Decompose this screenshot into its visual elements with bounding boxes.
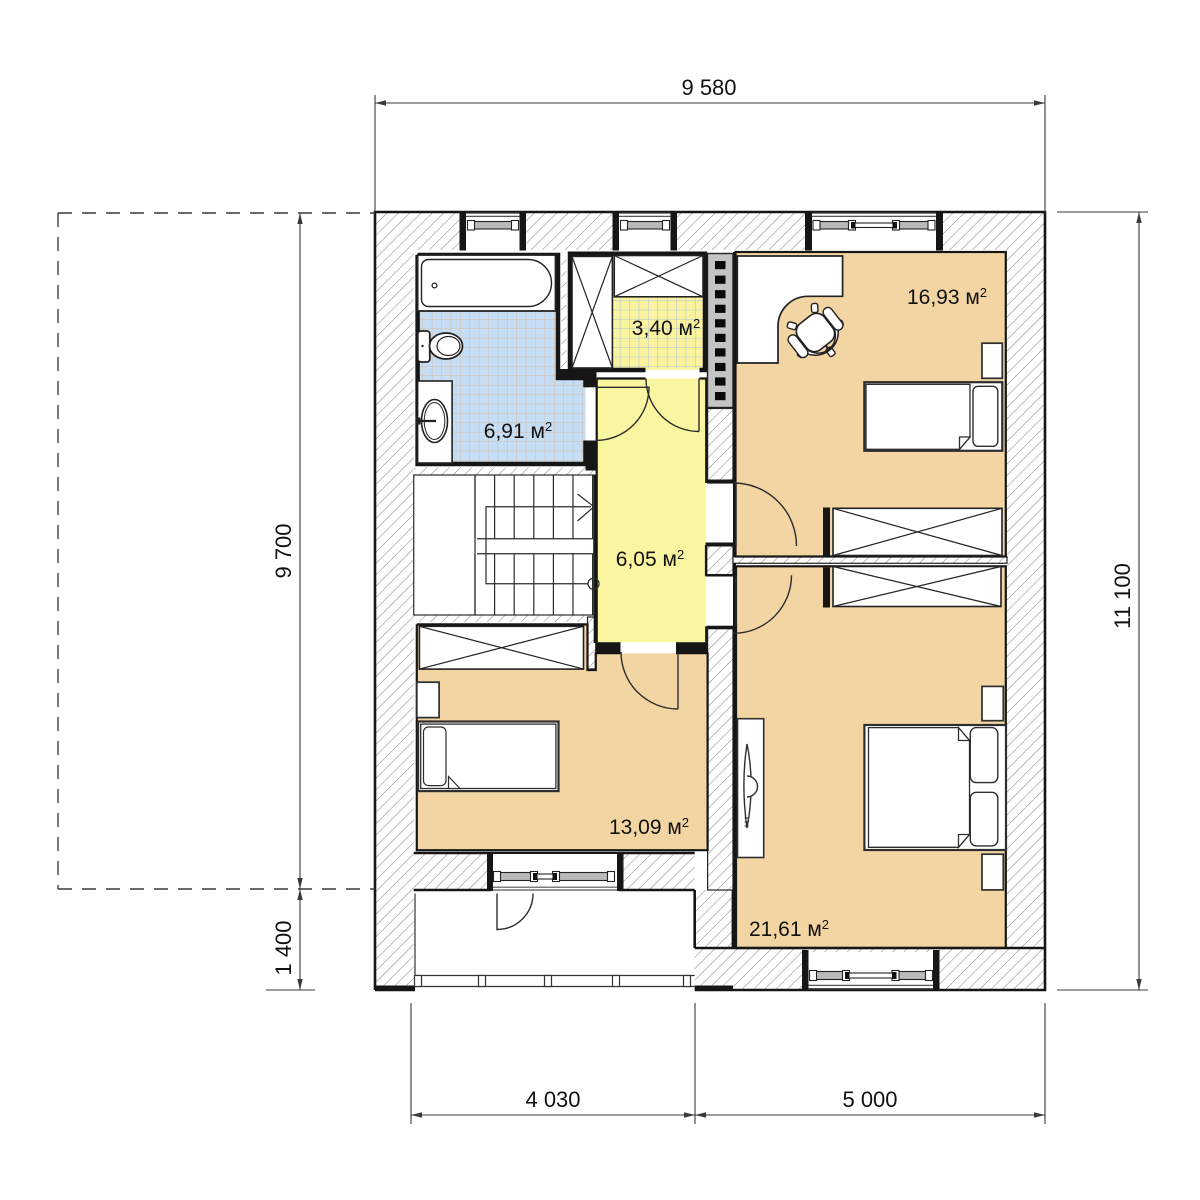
svg-text:9 700: 9 700 [271, 523, 296, 578]
svg-text:9 580: 9 580 [681, 75, 736, 100]
svg-text:11 100: 11 100 [1110, 563, 1135, 629]
svg-text:4 030: 4 030 [525, 1087, 580, 1112]
svg-text:21,61 м2: 21,61 м2 [749, 917, 829, 941]
svg-text:3,40 м2: 3,40 м2 [632, 316, 700, 340]
svg-text:6,05 м2: 6,05 м2 [616, 547, 684, 571]
svg-text:6,91 м2: 6,91 м2 [484, 419, 552, 443]
svg-text:1 400: 1 400 [271, 920, 296, 975]
svg-text:13,09 м2: 13,09 м2 [609, 815, 689, 839]
svg-text:5 000: 5 000 [842, 1087, 897, 1112]
svg-text:16,93 м2: 16,93 м2 [907, 285, 987, 309]
